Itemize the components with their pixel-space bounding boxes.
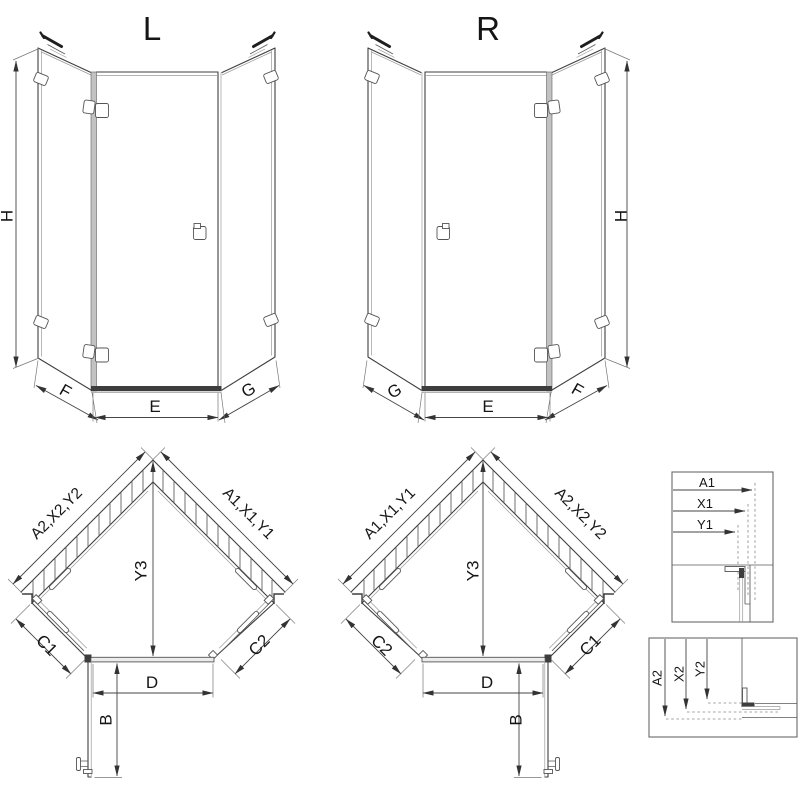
dim-label-d-left: D [146,673,158,692]
dim-label-e-left: E [149,397,160,416]
dim-label-y3-right: Y3 [463,561,482,582]
detail-label-a2: A2 [649,670,664,686]
technical-drawing-page: L H F E G R H G E F A2,X2,Y2 A1,X1,Y1 Y3… [0,0,800,800]
dim-label-height-right: H [611,210,630,222]
dim-label-height-left: H [0,210,16,222]
variant-title-right: R [476,10,500,47]
detail-label-y2: Y2 [692,661,707,677]
dim-label-e-right: E [482,397,493,416]
dim-label-b-left: B [96,714,115,725]
dim-label-d-right: D [481,673,493,692]
detail-label-y1: Y1 [697,517,713,532]
detail-label-x1: X1 [697,496,713,511]
dim-label-y3-left: Y3 [131,561,150,582]
detail-label-a1: A1 [699,475,715,490]
shower-enclosure-diagram: L H F E G R H G E F A2,X2,Y2 A1,X1,Y1 Y3… [0,0,800,800]
detail-label-x2: X2 [671,666,686,682]
variant-title-left: L [143,10,161,47]
dim-label-b-right: B [506,714,525,725]
